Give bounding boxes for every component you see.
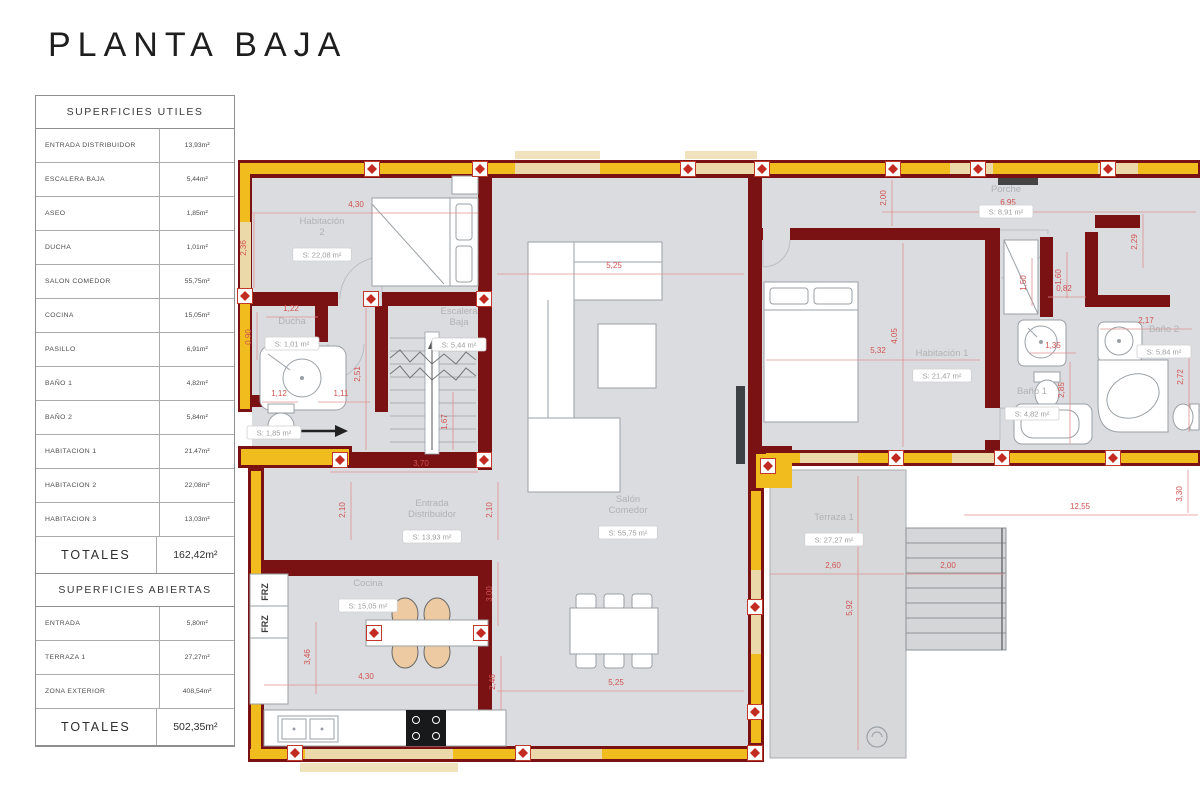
- dimension-label: 2,60: [825, 561, 841, 570]
- dimension-label: 0,82: [1056, 284, 1072, 293]
- table-row: HABITACION 121,47m²: [36, 435, 234, 469]
- tv: [736, 386, 745, 464]
- room-label: Comedor: [608, 505, 647, 516]
- row-value: 5,80m²: [160, 607, 234, 640]
- room-area: S: 13,93 m²: [413, 533, 452, 542]
- dimension-label: 1,35: [1045, 341, 1061, 350]
- row-value: 21,47m²: [160, 435, 234, 468]
- appliance-label: FRZ: [260, 615, 270, 633]
- row-label: ENTRADA DISTRIBUIDOR: [36, 129, 160, 162]
- room-label: Salón: [616, 494, 640, 505]
- dimension-label: 3,00: [485, 586, 494, 602]
- dimension-label: 1,11: [334, 389, 350, 398]
- room-label: 2: [319, 227, 324, 238]
- row-label: BAÑO 1: [36, 367, 160, 400]
- row-label: ZONA EXTERIOR: [36, 675, 160, 708]
- room-label: Habitación: [300, 216, 345, 227]
- row-value: 22,08m²: [160, 469, 234, 502]
- table-row: ENTRADA DISTRIBUIDOR13,93m²: [36, 129, 234, 163]
- room-area: S: 8,91 m²: [989, 208, 1024, 217]
- dimension-label: 1,22: [283, 304, 299, 313]
- coffee-table: [598, 324, 656, 388]
- row-label: HABITACION 2: [36, 469, 160, 502]
- page-title: PLANTA BAJA: [48, 26, 347, 65]
- row-value: 5,84m²: [160, 401, 234, 434]
- row-label: COCINA: [36, 299, 160, 332]
- row-value: 6,91m²: [160, 333, 234, 366]
- row-value: 27,27m²: [160, 641, 234, 674]
- dimension-label: 1,67: [440, 414, 449, 430]
- row-value: 13,93m²: [160, 129, 234, 162]
- page: PLANTA BAJA SUPERFICIES UTILES ENTRADA D…: [0, 0, 1200, 800]
- row-label: ASEO: [36, 197, 160, 230]
- dimension-label: 2,85: [1057, 382, 1066, 398]
- row-label: PASILLO: [36, 333, 160, 366]
- room-label: Distribuidor: [408, 509, 456, 520]
- table-body-abiertas: ENTRADA5,80m²TERRAZA 127,27m²ZONA EXTERI…: [36, 607, 234, 709]
- dimension-label: 2,00: [940, 561, 956, 570]
- room-area: S: 5,44 m²: [442, 341, 477, 350]
- sink-unit: [278, 716, 338, 742]
- row-value: 1,85m²: [160, 197, 234, 230]
- dimension-label: 2,72: [1176, 369, 1185, 385]
- table-total-utiles: TOTALES 162,42m²: [36, 537, 234, 574]
- dimension-label: 2,46: [488, 674, 497, 690]
- room-label: Habitación 1: [916, 348, 969, 359]
- table-row: HABITACION 313,03m²: [36, 503, 234, 537]
- table-row: BAÑO 14,82m²: [36, 367, 234, 401]
- table-row: HABITACION 222,08m²: [36, 469, 234, 503]
- row-value: 408,54m²: [160, 675, 234, 708]
- dining-table: [570, 594, 658, 668]
- dimension-label: 1,50: [1019, 275, 1028, 291]
- dimension-label: 3,30: [1175, 486, 1184, 502]
- room-label: Cocina: [353, 578, 383, 589]
- room-label: Terraza 1: [814, 512, 854, 523]
- table-row: COCINA15,05m²: [36, 299, 234, 333]
- row-value: 55,75m²: [160, 265, 234, 298]
- bed: [764, 282, 858, 422]
- row-label: ENTRADA: [36, 607, 160, 640]
- row-value: 1,01m²: [160, 231, 234, 264]
- room-area: S: 1,01 m²: [275, 340, 310, 349]
- room-area: S: 1,85 m²: [257, 429, 292, 438]
- dimension-label: 5,25: [608, 678, 624, 687]
- room-area: S: 15,05 m²: [349, 602, 388, 611]
- row-value: 4,82m²: [160, 367, 234, 400]
- room-label: Baño 2: [1149, 324, 1179, 335]
- dimension-label: 3,46: [303, 649, 312, 665]
- floor-plan: 4,302,365,256,952,002,295,324,051,501,60…: [230, 148, 1200, 800]
- table-row: ENTRADA5,80m²: [36, 607, 234, 641]
- dimension-label: 4,05: [890, 328, 899, 344]
- areas-table: SUPERFICIES UTILES ENTRADA DISTRIBUIDOR1…: [35, 95, 235, 747]
- row-label: ESCALERA BAJA: [36, 163, 160, 196]
- table-row: ASEO1,85m²: [36, 197, 234, 231]
- table-row: ZONA EXTERIOR408,54m²: [36, 675, 234, 709]
- room-area: S: 5,84 m²: [1147, 348, 1182, 357]
- row-label: TERRAZA 1: [36, 641, 160, 674]
- room-label: Baja: [449, 317, 469, 328]
- dimension-label: 2,29: [1130, 234, 1139, 250]
- bed: [372, 198, 478, 286]
- dimension-label: 0,90: [244, 329, 253, 345]
- room-label: Ducha: [278, 316, 306, 327]
- room-area: S: 55,75 m²: [609, 529, 648, 538]
- appliance-label: FRZ: [260, 583, 270, 601]
- dimension-label: 4,30: [348, 200, 364, 209]
- table-header-utiles: SUPERFICIES UTILES: [36, 96, 234, 129]
- table-row: ESCALERA BAJA5,44m²: [36, 163, 234, 197]
- corner-bathtub: [1098, 360, 1168, 432]
- dimension-label: 4,30: [358, 672, 374, 681]
- total-label: TOTALES: [36, 709, 157, 745]
- dimension-label: 5,92: [845, 600, 854, 616]
- dimension-label: 12,55: [1070, 502, 1091, 511]
- room-label: Escalera: [441, 306, 479, 317]
- dimension-label: 3,70: [413, 459, 429, 468]
- room-area: S: 27,27 m²: [815, 536, 854, 545]
- dimension-label: 1,12: [271, 389, 287, 398]
- row-value: 15,05m²: [160, 299, 234, 332]
- dimension-label: 2,00: [879, 190, 888, 206]
- table-row: DUCHA1,01m²: [36, 231, 234, 265]
- room-label: Entrada: [415, 498, 449, 509]
- total-value: 502,35m²: [157, 709, 234, 745]
- shower: [260, 346, 346, 410]
- dimension-label: 2,10: [338, 502, 347, 518]
- dimension-label: 1,60: [1054, 269, 1063, 285]
- dimension-label: 2,36: [239, 240, 248, 256]
- room-label: Porche: [991, 184, 1021, 195]
- dimension-label: 5,32: [870, 346, 886, 355]
- table-header-abiertas: SUPERFICIES ABIERTAS: [36, 574, 234, 607]
- nightstand: [452, 176, 478, 194]
- total-value: 162,42m²: [157, 537, 234, 573]
- dimension-label: 2,51: [353, 366, 362, 382]
- table-body-utiles: ENTRADA DISTRIBUIDOR13,93m²ESCALERA BAJA…: [36, 129, 234, 537]
- row-value: 13,03m²: [160, 503, 234, 536]
- dimension-label: 2,10: [485, 502, 494, 518]
- row-value: 5,44m²: [160, 163, 234, 196]
- total-label: TOTALES: [36, 537, 157, 573]
- sink: [1098, 322, 1142, 362]
- row-label: HABITACION 3: [36, 503, 160, 536]
- room-area: S: 21,47 m²: [923, 372, 962, 381]
- toilet: [1173, 404, 1199, 430]
- table-row: TERRAZA 127,27m²: [36, 641, 234, 675]
- row-label: SALON COMEDOR: [36, 265, 160, 298]
- room-area: S: 4,82 m²: [1015, 410, 1050, 419]
- terrace-stairs: [906, 528, 1006, 650]
- table-row: PASILLO6,91m²: [36, 333, 234, 367]
- table-row: SALON COMEDOR55,75m²: [36, 265, 234, 299]
- table-total-abiertas: TOTALES 502,35m²: [36, 709, 234, 746]
- cooktop: [406, 710, 446, 746]
- room-area: S: 22,08 m²: [303, 251, 342, 260]
- row-label: DUCHA: [36, 231, 160, 264]
- room-label: Baño 1: [1017, 386, 1047, 397]
- table-row: BAÑO 25,84m²: [36, 401, 234, 435]
- kitchen-counter: [264, 710, 506, 746]
- dimension-label: 5,25: [606, 261, 622, 270]
- row-label: HABITACION 1: [36, 435, 160, 468]
- row-label: BAÑO 2: [36, 401, 160, 434]
